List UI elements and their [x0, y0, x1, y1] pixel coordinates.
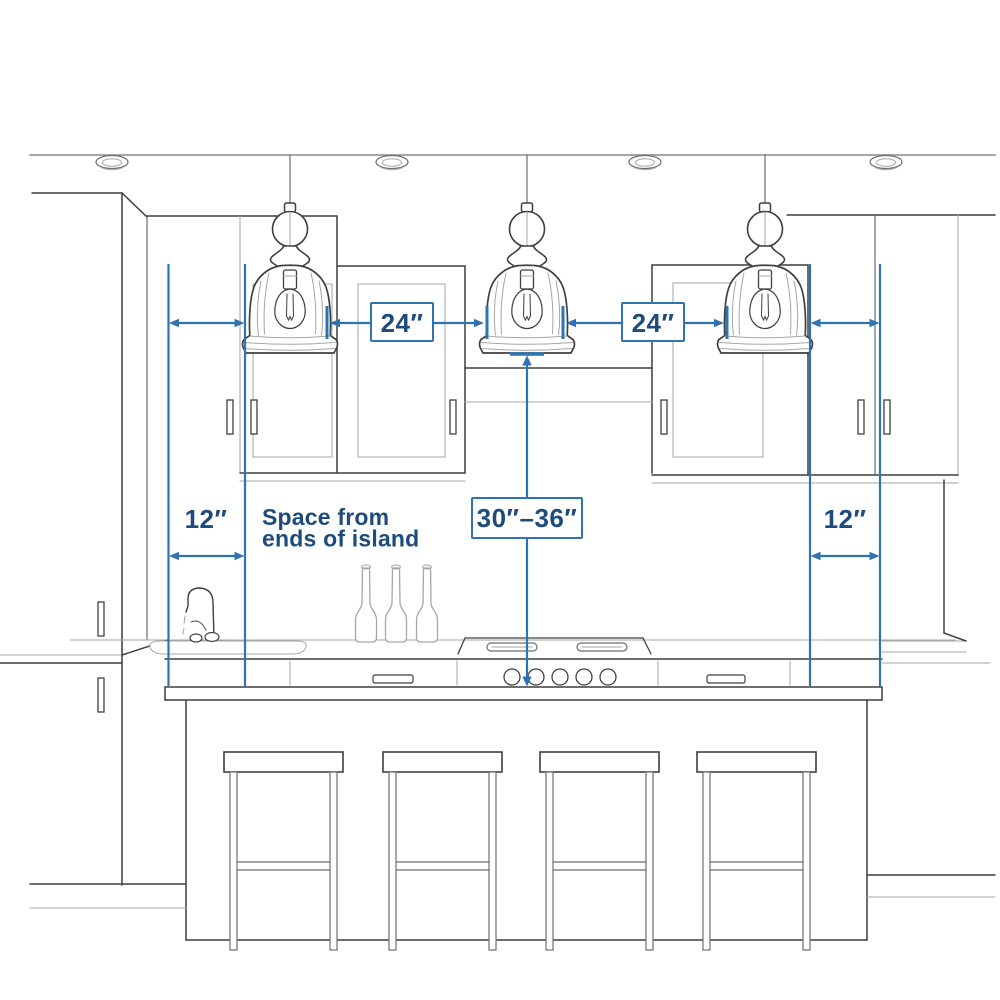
wine-bottles [356, 565, 438, 642]
bar-stool [697, 752, 816, 950]
cabinet-handle-icon [858, 400, 864, 434]
recessed-light-icon [870, 156, 902, 170]
drawer-handle-icon [373, 675, 413, 683]
end-space-right-label: 12″ [824, 504, 867, 534]
diagram-svg: 24″ 24″ 30″–36″ 12″ 12″ Space from ends … [0, 0, 1000, 1000]
ceiling [30, 155, 995, 170]
cabinet-handle-icon [98, 602, 104, 636]
pendant-gap-right-label: 24″ [632, 308, 675, 338]
cooktop-knobs [504, 669, 616, 685]
pendant-gap-left-label: 24″ [381, 308, 424, 338]
bottle-icon [356, 565, 377, 642]
recessed-light-icon [376, 156, 408, 170]
drawer-handle-icon [707, 675, 745, 683]
pendant-light-1 [243, 155, 338, 353]
island [186, 700, 867, 940]
bar-stool [540, 752, 659, 950]
sink-faucet [150, 588, 306, 654]
pendant-light-2 [480, 155, 575, 353]
cabinet-handle-icon [251, 400, 257, 434]
bottle-icon [417, 565, 438, 642]
bar-stools [224, 752, 816, 950]
bar-stool [224, 752, 343, 950]
end-space-left-label: 12″ [185, 504, 228, 534]
bottle-icon [386, 565, 407, 642]
cabinet-handle-icon [98, 678, 104, 712]
recessed-light-icon [629, 156, 661, 170]
kitchen-pendant-spacing-diagram: 24″ 24″ 30″–36″ 12″ 12″ Space from ends … [0, 0, 1000, 1000]
floor-lines [30, 875, 995, 908]
pendant-light-3 [718, 155, 813, 353]
end-space-note-line2: ends of island [262, 526, 419, 552]
height-range-label: 30″–36″ [477, 503, 578, 533]
cabinet-handle-icon [227, 400, 233, 434]
cabinet-handle-icon [884, 400, 890, 434]
bar-stool [383, 752, 502, 950]
recessed-light-icon [96, 156, 128, 170]
cabinet-handle-icon [661, 400, 667, 434]
cabinet-handle-icon [450, 400, 456, 434]
